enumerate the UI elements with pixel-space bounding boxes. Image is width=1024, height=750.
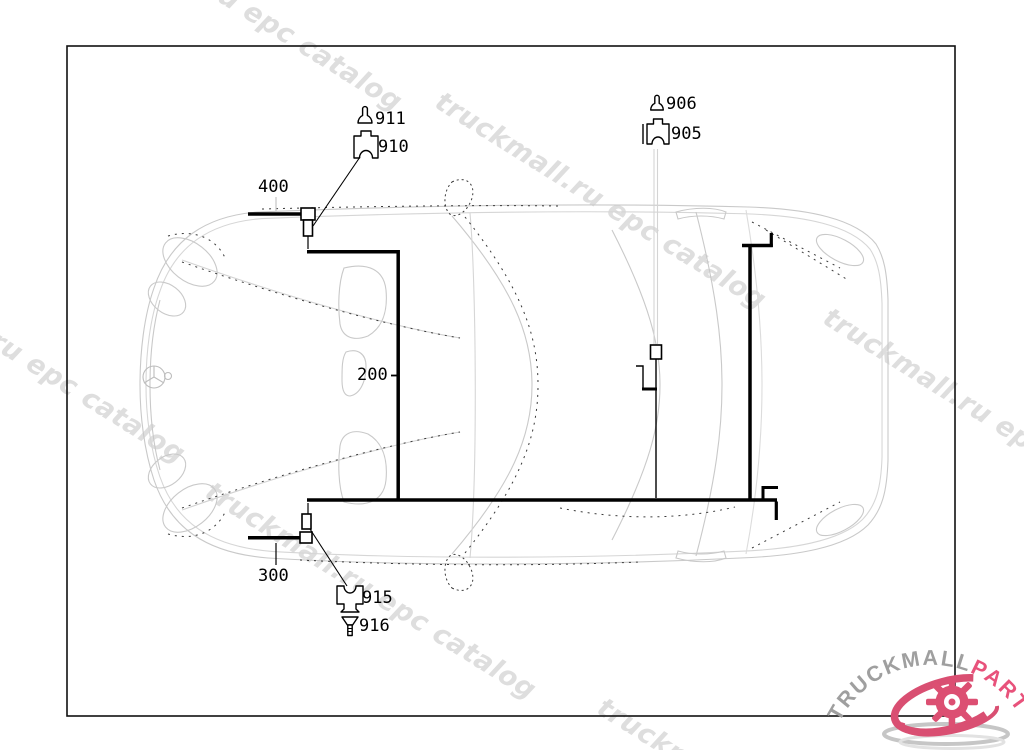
- logo-arc-text: TRUCKMALLPARTS: [0, 0, 1024, 725]
- gear-icon: [926, 676, 978, 728]
- logo-text-parts: PARTS: [0, 0, 1024, 716]
- epc-diagram-page: truckmall.ru epc catalog truckmall.ru ep…: [0, 0, 1024, 750]
- truckmall-parts-logo: TRUCKMALLPARTS: [0, 0, 1024, 750]
